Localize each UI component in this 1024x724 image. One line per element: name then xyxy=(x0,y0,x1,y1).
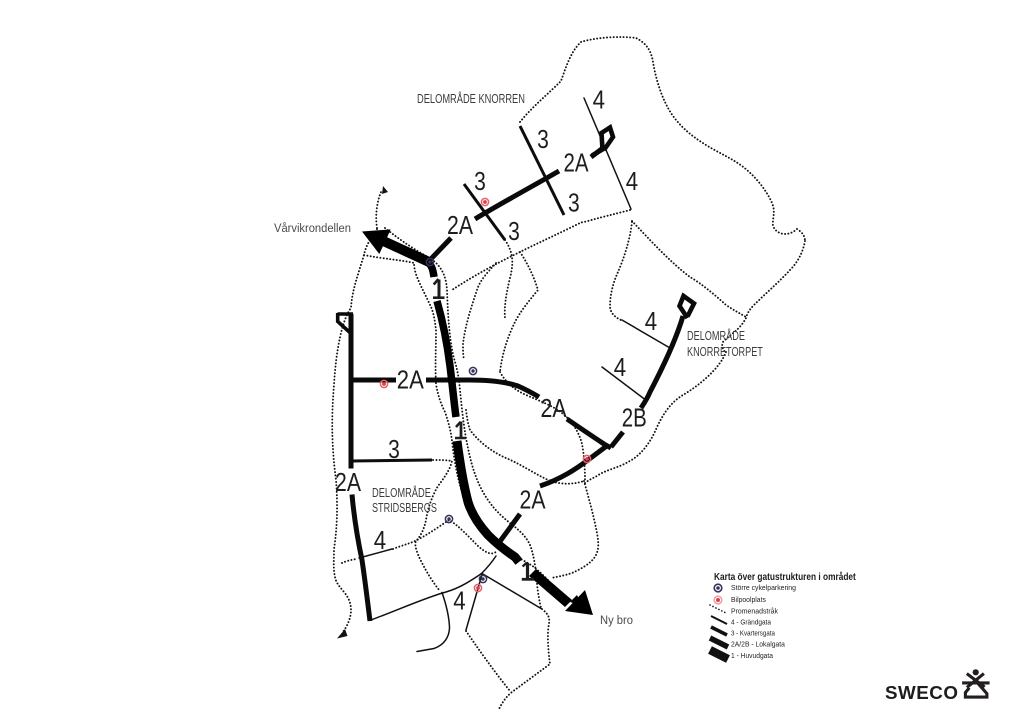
svg-text:3: 3 xyxy=(537,126,549,155)
svg-text:Karta över gatustrukturen i om: Karta över gatustrukturen i området xyxy=(714,571,856,582)
svg-text:Bilpoolplats: Bilpoolplats xyxy=(731,596,766,604)
svg-text:2B: 2B xyxy=(622,403,647,432)
svg-text:2A: 2A xyxy=(541,395,567,423)
svg-text:DELOMRÅDE KNORREN: DELOMRÅDE KNORREN xyxy=(417,91,525,106)
svg-text:2A: 2A xyxy=(520,487,546,515)
svg-text:4: 4 xyxy=(374,526,386,555)
svg-text:4: 4 xyxy=(645,307,657,336)
svg-text:4: 4 xyxy=(614,353,626,382)
svg-text:4 - Grändgata: 4 - Grändgata xyxy=(731,619,771,626)
svg-text:STRIDSBERGS: STRIDSBERGS xyxy=(372,502,437,516)
svg-text:4: 4 xyxy=(453,587,465,616)
svg-text:4: 4 xyxy=(626,167,638,196)
svg-text:2A/2B - Lokalgata: 2A/2B - Lokalgata xyxy=(731,640,785,648)
svg-text:2A: 2A xyxy=(564,148,589,177)
svg-text:Vårvikrondellen: Vårvikrondellen xyxy=(274,223,351,235)
svg-text:Större cykelparkering: Större cykelparkering xyxy=(731,583,796,592)
svg-text:2A: 2A xyxy=(397,366,425,395)
svg-text:2A: 2A xyxy=(335,469,361,497)
svg-text:KNORRETORPET: KNORRETORPET xyxy=(687,346,763,360)
svg-text:3: 3 xyxy=(568,190,580,219)
svg-text:3: 3 xyxy=(388,436,400,465)
svg-text:3: 3 xyxy=(508,218,520,247)
svg-text:Promenadstråk: Promenadstråk xyxy=(731,606,778,615)
svg-text:2A: 2A xyxy=(447,212,473,240)
svg-text:SWECO: SWECO xyxy=(885,682,958,703)
svg-text:DELOMRÅDE: DELOMRÅDE xyxy=(372,486,431,501)
svg-text:DELOMRÅDE: DELOMRÅDE xyxy=(687,328,745,343)
svg-text:4: 4 xyxy=(593,86,605,115)
svg-text:1 - Huvudgata: 1 - Huvudgata xyxy=(731,652,773,660)
svg-text:3: 3 xyxy=(474,168,486,197)
svg-text:Ny bro: Ny bro xyxy=(600,614,633,627)
svg-text:3 - Kvartersgata: 3 - Kvartersgata xyxy=(731,630,775,638)
